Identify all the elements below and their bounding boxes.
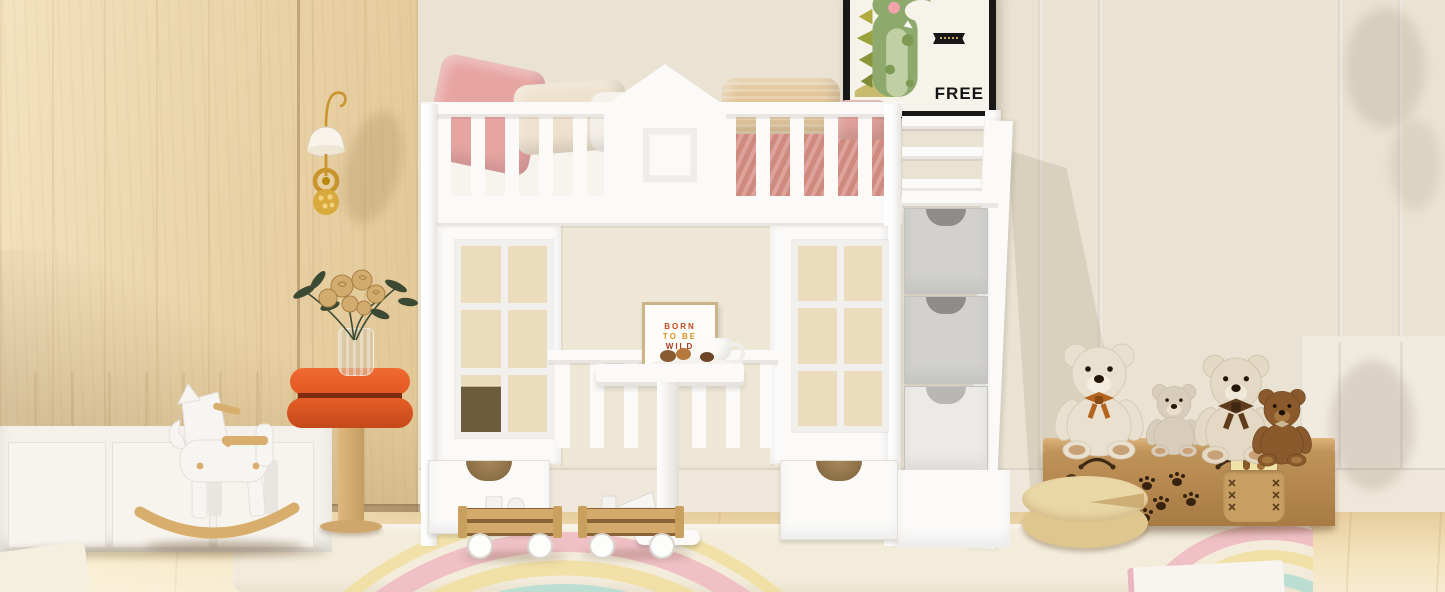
pastry xyxy=(700,352,714,362)
stair-drawer-2 xyxy=(904,296,988,384)
right-storage-drawer xyxy=(780,460,898,540)
teddy-bear-large-cream xyxy=(1048,338,1150,460)
drawer-handle-notch xyxy=(466,461,512,481)
stair-top-beam xyxy=(902,191,998,206)
table-lower-disc xyxy=(287,398,413,428)
kids-room-photo: FREE xyxy=(0,0,1445,592)
stair-drawer-3 xyxy=(904,386,988,472)
bench-drawer xyxy=(8,442,106,548)
pastry xyxy=(660,350,676,362)
guard-rail-slats-left xyxy=(437,116,607,202)
window-pane xyxy=(461,310,501,367)
stair-base xyxy=(898,470,1010,548)
leaf-shadow xyxy=(1345,8,1425,128)
ribbon-banner xyxy=(933,33,965,44)
window-pane xyxy=(798,371,837,426)
window-pane-basket xyxy=(461,375,501,432)
window-pane xyxy=(508,310,548,367)
window-pane xyxy=(508,246,548,303)
toy-wagon-blocks xyxy=(452,496,570,560)
left-tower xyxy=(437,226,561,464)
leaf-shadow xyxy=(1390,120,1440,210)
pocket-stitches xyxy=(1225,476,1283,518)
window-pane xyxy=(844,371,883,426)
window-pane xyxy=(844,246,883,301)
guard-rail-slats-right xyxy=(722,116,886,202)
rocking-horse xyxy=(130,380,302,552)
window-pane xyxy=(461,246,501,303)
window-pane xyxy=(798,246,837,301)
window-pane xyxy=(798,308,837,363)
drawer-handle-notch xyxy=(926,209,966,226)
table-pedestal xyxy=(338,428,364,530)
drawer-handle-notch xyxy=(926,297,966,314)
right-tower-window xyxy=(792,240,888,432)
right-tower xyxy=(770,226,888,464)
drawer-handle-notch xyxy=(816,461,862,481)
toy-wagon-plane xyxy=(572,490,692,560)
stair-drawer-1 xyxy=(904,208,988,294)
house-window xyxy=(643,128,697,182)
teddy-bear-brown xyxy=(1248,382,1316,470)
window-pane xyxy=(844,308,883,363)
flower-bouquet xyxy=(284,262,422,342)
print-text-line1: BORN xyxy=(664,322,696,331)
dinosaur-illustration xyxy=(850,0,942,97)
bed-deck-beam xyxy=(421,208,902,226)
window-pane xyxy=(508,375,548,432)
bear-shadow xyxy=(1330,360,1415,490)
chest-pocket xyxy=(1223,470,1285,522)
left-tower-window xyxy=(455,240,553,438)
desk-top xyxy=(596,364,744,382)
pastry xyxy=(676,348,691,360)
poster-free-text: FREE xyxy=(935,84,984,104)
ribbon-dots xyxy=(940,37,958,39)
table-foot xyxy=(320,520,382,533)
drawer-handle-notch xyxy=(926,387,966,404)
